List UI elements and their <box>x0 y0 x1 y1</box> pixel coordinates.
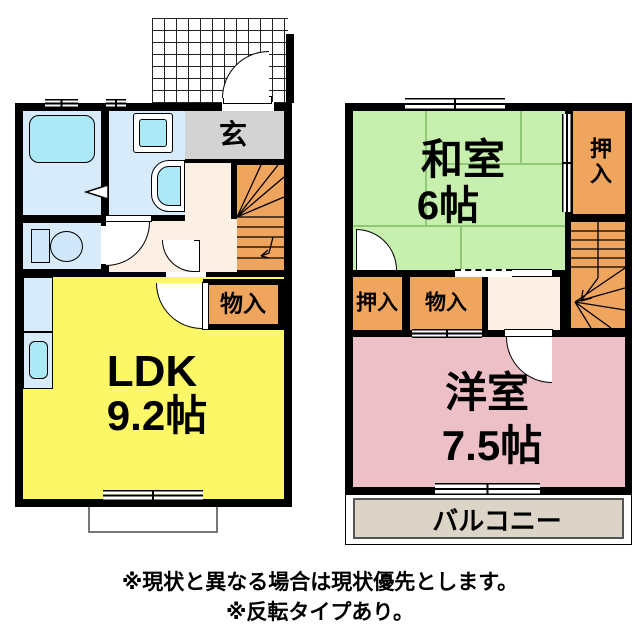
washroom-bottom-wall <box>148 215 185 221</box>
disclaimer-line-2: ※反転タイプあり。 <box>0 598 640 628</box>
washitsu-size-label: 6帖 <box>417 186 479 226</box>
hall-door-leaf <box>193 240 200 272</box>
closet-top-label: 押入 <box>588 137 610 187</box>
washroom-window <box>106 99 126 108</box>
yoshitsu-bottom-window <box>435 483 540 495</box>
disclaimer-line-1: ※現状と異なる場合は現状優先とします。 <box>0 568 640 598</box>
bathroom-window <box>45 99 78 108</box>
tatami-line <box>460 227 462 270</box>
bath-door-arrow-icon <box>84 184 110 200</box>
ldk-bottom-window <box>103 490 203 501</box>
genkan-label: 玄 <box>219 121 247 149</box>
ldk-label: LDK <box>107 350 197 394</box>
toilet-tank-icon <box>31 229 50 263</box>
washitsu-opening-sliding <box>512 269 552 277</box>
ldk-size-label: 9.2帖 <box>107 395 207 437</box>
porch-right-wall <box>286 34 294 103</box>
tatami-line <box>520 111 522 165</box>
toilet-bowl-icon <box>50 231 83 262</box>
yoshitsu-label: 洋室 <box>445 372 529 414</box>
washroom-door-leaf <box>105 215 152 222</box>
sink-basin-icon <box>157 166 181 206</box>
washitsu-opening-dashed <box>455 269 512 277</box>
closet-top-sliding-door <box>562 114 572 212</box>
hallway-2f <box>488 277 560 330</box>
stairs-1f-treads <box>237 165 284 270</box>
floor-plan-image: 玄 物入 LDK 9.2帖 <box>0 0 640 640</box>
disclaimer-notes: ※現状と異なる場合は現状優先とします。 ※反転タイプあり。 <box>0 568 640 629</box>
ldk-door-gap <box>166 272 206 277</box>
bathtub-icon <box>29 115 95 163</box>
storage-1f-label: 物入 <box>220 293 266 316</box>
kitchen-counter-top <box>23 277 53 332</box>
storage-2f-sliding-door <box>412 329 482 338</box>
toilet-door-gap <box>101 226 109 264</box>
storage-2f-label: 物入 <box>425 293 467 314</box>
closet-bottom-label: 押入 <box>356 293 398 314</box>
yoshitsu-door-leaf <box>504 329 553 337</box>
kitchen-sink-icon <box>29 341 48 379</box>
washing-machine-drum-icon <box>139 119 167 147</box>
stairs-2f-treads <box>571 222 625 328</box>
balcony-label: バルコニー <box>432 508 561 534</box>
yoshitsu-size-label: 7.5帖 <box>442 425 542 467</box>
washitsu-top-window <box>405 98 505 110</box>
washitsu-label: 和室 <box>421 139 505 181</box>
ldk-door-leaf <box>202 282 209 330</box>
